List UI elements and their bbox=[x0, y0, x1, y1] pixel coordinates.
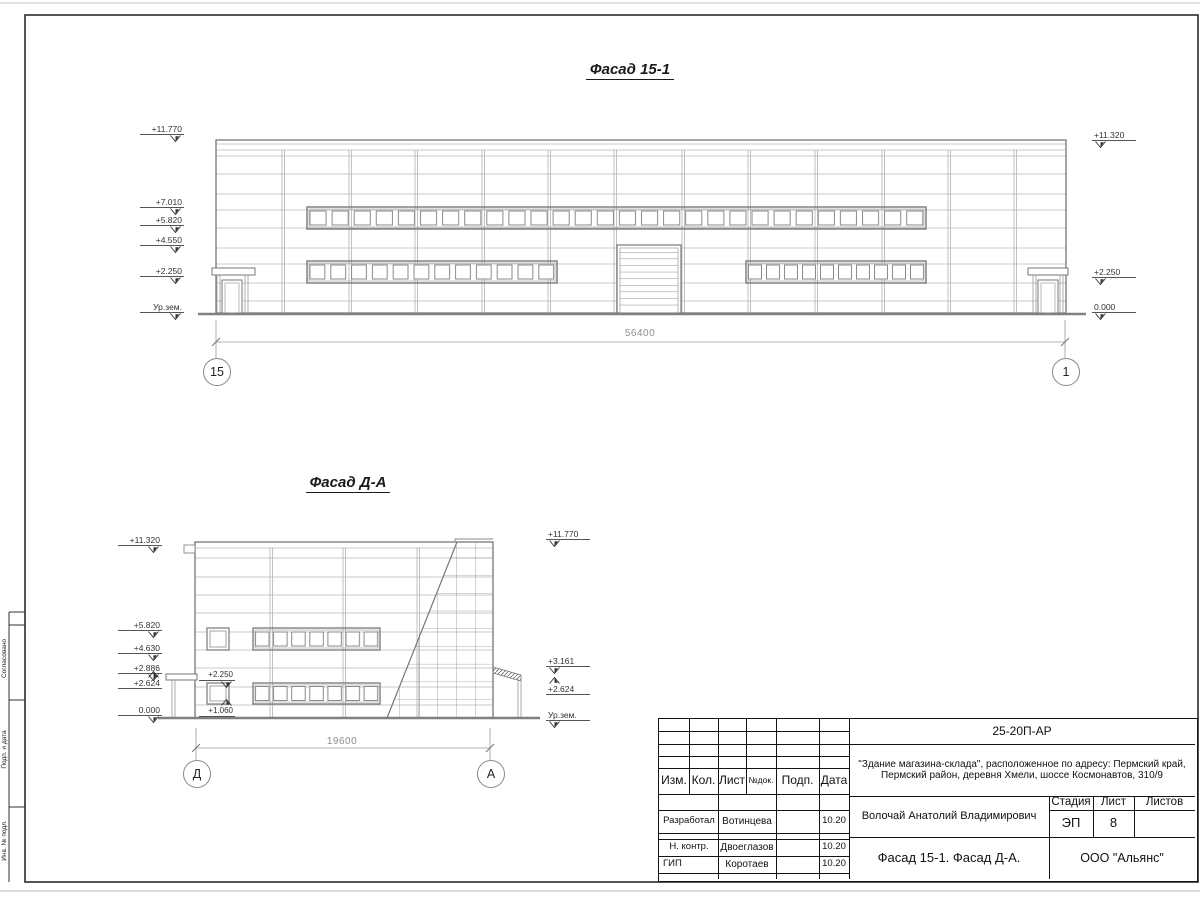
row-date: 10.20 bbox=[819, 856, 849, 873]
elevation-mark: +5.820 bbox=[118, 620, 162, 638]
drawing-sheet: Фасад 15-1 Фасад Д-А +11.770 +7.010 +5.8… bbox=[0, 0, 1200, 900]
document-code: 25-20П-АР bbox=[849, 719, 1195, 744]
rev-header-podp: Подп. bbox=[776, 768, 819, 794]
sheet-number-value: 8 bbox=[1093, 810, 1134, 837]
entrance-door-left bbox=[212, 268, 255, 314]
elevation-arrow-icon bbox=[549, 540, 560, 547]
rev-header-kol: Кол. bbox=[689, 768, 718, 794]
elevation-arrow-icon bbox=[148, 631, 159, 638]
elevation-mark: +3.161 bbox=[546, 656, 590, 674]
row-name: Вотинцева bbox=[718, 810, 776, 833]
rev-header-list: Лист bbox=[718, 768, 746, 794]
facade-15-1-title: Фасад 15-1 bbox=[550, 61, 710, 78]
row-role: Разработал bbox=[660, 810, 718, 833]
elevation-mark: +1.060 bbox=[199, 706, 235, 724]
row-date: 10.20 bbox=[819, 839, 849, 856]
elevation-arrow-icon bbox=[148, 671, 159, 678]
facade-d-a-title: Фасад Д-А bbox=[268, 474, 428, 491]
elevation-arrow-icon bbox=[221, 699, 232, 706]
elevation-arrow-icon bbox=[170, 208, 181, 215]
sheet-label: Лист bbox=[1093, 796, 1134, 810]
elevation-mark: +4.630 bbox=[118, 643, 162, 661]
stage-value: ЭП bbox=[1049, 810, 1093, 837]
organization-name: ООО "Альянс" bbox=[1049, 837, 1195, 879]
elevation-mark: 0.000 bbox=[1092, 302, 1136, 320]
elevation-mark: +11.320 bbox=[118, 535, 162, 553]
dimension-label: 19600 bbox=[302, 736, 382, 747]
sheet-title: Фасад 15-1. Фасад Д-А. bbox=[849, 837, 1049, 879]
elevation-mark: +11.770 bbox=[140, 124, 184, 142]
side-canopy-left bbox=[166, 674, 197, 718]
square-window-upper bbox=[207, 628, 229, 650]
axis-bubble-1: 1 bbox=[1052, 358, 1080, 386]
ribbon-window-lower-2 bbox=[253, 683, 380, 704]
elevation-arrow-icon bbox=[170, 226, 181, 233]
elevation-arrow-icon bbox=[148, 546, 159, 553]
stage-label: Стадия bbox=[1049, 796, 1093, 810]
sheets-label: Листов bbox=[1134, 796, 1195, 810]
elevation-arrow-icon bbox=[1095, 278, 1106, 285]
elevation-arrow-icon bbox=[1095, 141, 1106, 148]
roller-gate bbox=[617, 245, 681, 313]
elevation-arrow-icon bbox=[170, 313, 181, 320]
entrance-door-right bbox=[1028, 268, 1068, 314]
facade-15-1-linework bbox=[198, 140, 1086, 358]
elevation-arrow-icon bbox=[1095, 313, 1106, 320]
elevation-mark: Ур.зем. bbox=[140, 302, 184, 320]
side-strip-label: Согласовано bbox=[1, 621, 8, 696]
elevation-arrow-icon bbox=[170, 277, 181, 284]
elevation-arrow-icon bbox=[148, 654, 159, 661]
axis-bubble-15: 15 bbox=[203, 358, 231, 386]
author-name: Волочай Анатолий Владимирович bbox=[849, 796, 1049, 837]
axis-bubble-d: Д bbox=[183, 760, 211, 788]
elevation-mark: +11.320 bbox=[1092, 130, 1136, 148]
dimension-line-1 bbox=[212, 320, 1069, 358]
ribbon-window-upper bbox=[307, 207, 926, 229]
title-block: Изм. Кол. Лист №док. Подп. Дата Разработ… bbox=[658, 718, 1198, 882]
side-strip-label: Инв. № подл. bbox=[1, 803, 8, 878]
elevation-mark: +11.770 bbox=[546, 529, 590, 547]
elevation-arrow-icon bbox=[170, 135, 181, 142]
elevation-mark: +5.820 bbox=[140, 215, 184, 233]
row-date: 10.20 bbox=[819, 810, 849, 833]
side-porch-right bbox=[493, 667, 521, 718]
elevation-mark: +2.250 bbox=[140, 266, 184, 284]
elevation-mark: 0.000 bbox=[118, 705, 162, 723]
ribbon-window-lower-left bbox=[307, 261, 557, 283]
elevation-arrow-icon bbox=[549, 721, 560, 728]
elevation-mark: +2.624 bbox=[118, 678, 162, 696]
project-description-line2: Пермский район, деревня Хмели, шоссе Кос… bbox=[881, 770, 1163, 782]
rev-header-data: Дата bbox=[819, 768, 849, 794]
elevation-arrow-icon bbox=[148, 716, 159, 723]
ribbon-window-lower-right bbox=[746, 261, 926, 283]
project-description-line1: "Здание магазина-склада", расположенное … bbox=[858, 759, 1185, 771]
elevation-arrow-icon bbox=[549, 667, 560, 674]
curtain-wall-glazing bbox=[387, 542, 493, 718]
elevation-arrow-icon bbox=[221, 681, 232, 688]
facade-d-a-linework bbox=[158, 539, 540, 762]
elevation-mark: +2.250 bbox=[199, 670, 235, 688]
ribbon-window-upper-2 bbox=[253, 628, 380, 650]
row-role: Н. контр. bbox=[660, 839, 718, 856]
elevation-mark: +2.250 bbox=[1092, 267, 1136, 285]
project-description: "Здание магазина-склада", расположенное … bbox=[849, 744, 1195, 796]
elevation-mark: +7.010 bbox=[140, 197, 184, 215]
elevation-arrow-icon bbox=[170, 246, 181, 253]
row-name: Двоеглазов bbox=[718, 839, 776, 856]
dimension-label: 56400 bbox=[600, 328, 680, 339]
elevation-mark: +2.624 bbox=[546, 684, 590, 702]
side-strip-label: Подп. и дата bbox=[1, 696, 8, 803]
rev-header-izm: Изм. bbox=[659, 768, 689, 794]
row-role: ГИП bbox=[660, 856, 721, 873]
elevation-arrow-icon bbox=[549, 677, 560, 684]
axis-bubble-a: А bbox=[477, 760, 505, 788]
elevation-mark: Ур.зем. bbox=[546, 710, 590, 728]
rev-header-ndok: №док. bbox=[746, 768, 776, 794]
elevation-mark: +4.550 bbox=[140, 235, 184, 253]
row-name: Коротаев bbox=[718, 856, 776, 873]
